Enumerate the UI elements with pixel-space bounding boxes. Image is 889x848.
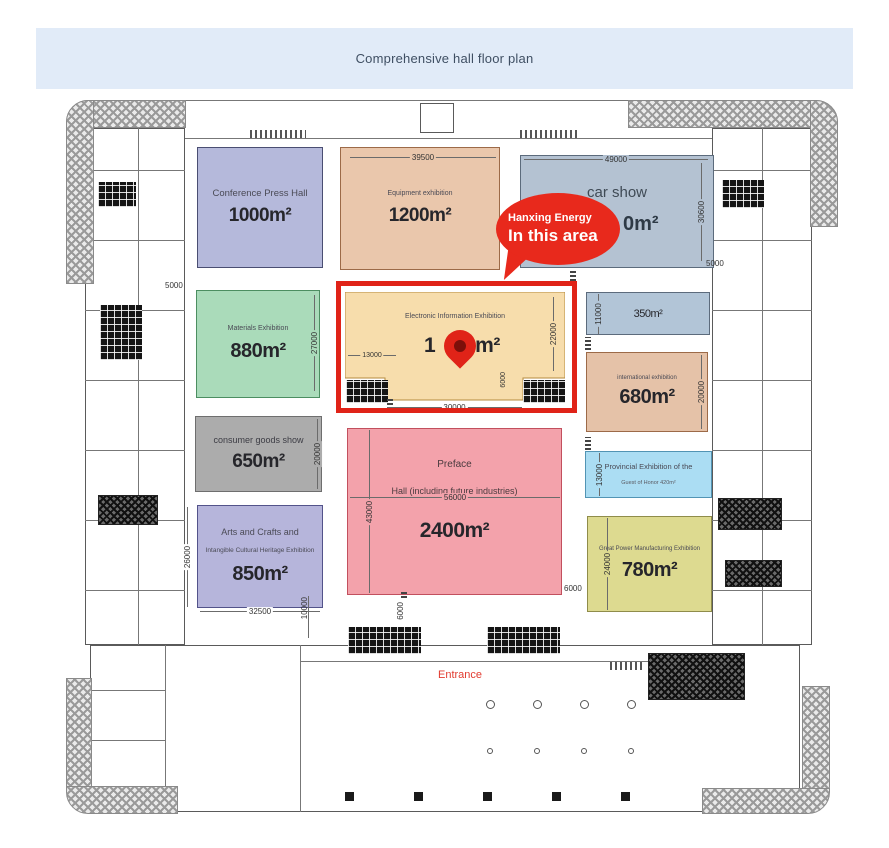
page-header: Comprehensive hall floor plan [36, 28, 853, 89]
zone-area: 350m² [634, 308, 663, 320]
door-post [414, 792, 423, 801]
zone-conference-press-hall: Conference Press Hall 1000m² [197, 147, 323, 268]
zone-name: international exhibition [617, 375, 677, 383]
door-post [621, 792, 630, 801]
callout-bubble[interactable]: Hanxing Energy In this area [496, 193, 620, 265]
top-vestibule [420, 103, 454, 133]
dim-label: 6000 [564, 584, 582, 593]
right-stair-block [722, 180, 764, 208]
dim-line: 56000 [350, 497, 560, 498]
dim-line: 20000 [317, 419, 318, 489]
dim-line: 24000 [607, 518, 608, 610]
left-wing-divider [85, 240, 185, 241]
dim-label: 20000 [313, 441, 322, 467]
left-stair-block [98, 182, 136, 207]
column-dot [627, 700, 636, 709]
column-dot [628, 748, 634, 754]
zone-area: 680m² [619, 386, 674, 409]
right-wing-divider [712, 380, 812, 381]
zone-name: Conference Press Hall [212, 188, 307, 200]
dim-line: 20000 [701, 355, 702, 429]
left-escalator-block [98, 495, 158, 525]
expansion-joint [585, 437, 591, 450]
left-wing-divider [85, 380, 185, 381]
lobby-room-line [90, 690, 165, 691]
zone-area: 780m² [622, 559, 677, 582]
expansion-joint [585, 337, 591, 350]
door-post [552, 792, 561, 801]
zone-name: Great Power Manufacturing Exhibition [599, 546, 700, 554]
zone-name-line2: Intangible Cultural Heritage Exhibition [206, 547, 315, 555]
zone-name: Equipment exhibition [388, 190, 453, 199]
dim-label: 32500 [247, 607, 273, 616]
wall-hatch-top-right-h [628, 100, 838, 128]
zone-name: Provincial Exhibition of the [605, 462, 693, 471]
zone-name: consumer goods show [213, 435, 303, 446]
top-door-hatch [250, 130, 306, 138]
dim-label: 27000 [310, 330, 319, 356]
zone-consumer-goods-show: consumer goods show 650m² [195, 416, 322, 492]
dim-label: 49000 [603, 155, 629, 164]
top-wall-inner [185, 138, 712, 139]
dim-line: 30600 [701, 163, 702, 261]
callout-title: Hanxing Energy [508, 212, 620, 224]
zone-area: 1200m² [389, 205, 452, 227]
left-wing-corridor-line [138, 128, 139, 645]
dim-label: 11000 [594, 301, 603, 327]
left-wing-divider [85, 170, 185, 171]
dim-label: 56000 [442, 493, 468, 502]
zone-area: 850m² [232, 563, 287, 586]
zone-area: 650m² [232, 451, 284, 473]
zone-area: 2400m² [420, 519, 489, 543]
zone-350: 350m² [586, 292, 710, 335]
zone-name: Materials Exhibition [228, 325, 289, 334]
zone-preface-hall: Preface Hall (including future industrie… [347, 428, 562, 595]
lobby-stair-block-left [348, 627, 421, 654]
door-post [345, 792, 354, 801]
expansion-joint [401, 590, 407, 598]
dim-label: 43000 [365, 498, 374, 524]
dim-line: 39500 [350, 157, 496, 158]
dim-label: 6000 [396, 602, 405, 620]
dim-label: 10000 [300, 597, 309, 619]
floor-plan-page: Comprehensive hall floor plan [0, 0, 889, 848]
right-wing-divider [712, 590, 812, 591]
dim-label: 30600 [697, 199, 706, 225]
dim-label: 24000 [603, 551, 612, 577]
dim-label: 13000 [595, 461, 604, 487]
dim-line: 11000 [598, 294, 599, 334]
dim-line: 13000 [599, 453, 600, 496]
zone-area: 1000m² [229, 205, 292, 227]
lobby-escalator-block [648, 653, 745, 700]
column-dot [533, 700, 542, 709]
lobby-room-line [90, 740, 165, 741]
right-wing-divider [712, 170, 812, 171]
dim-line: 27000 [314, 295, 315, 391]
top-door-hatch [520, 130, 578, 138]
door-post [483, 792, 492, 801]
lobby-hatch-strip [610, 662, 645, 670]
zone-subtitle: Guest of Honor 420m² [621, 480, 675, 487]
right-escalator-block [725, 560, 782, 587]
dim-label: 5000 [706, 259, 724, 268]
lobby-stair-block-right [487, 627, 560, 654]
wall-hatch-top-left-v [66, 100, 94, 284]
right-wing-divider [712, 240, 812, 241]
column-dot [581, 748, 587, 754]
right-wing-divider [712, 450, 812, 451]
zone-name-line1: Preface [437, 459, 471, 472]
zone-area: 880m² [230, 340, 285, 363]
zone-arts-and-crafts: Arts and Crafts and Intangible Cultural … [197, 505, 323, 608]
right-wing-divider [712, 310, 812, 311]
left-wing-divider [85, 590, 185, 591]
car-show-area-fragment: 0m² [623, 213, 659, 236]
page-title: Comprehensive hall floor plan [356, 51, 534, 66]
zone-name-line1: Arts and Crafts and [221, 527, 299, 538]
dim-label: 39500 [410, 153, 436, 162]
column-dot [534, 748, 540, 754]
left-wing-divider [85, 450, 185, 451]
column-dot [580, 700, 589, 709]
column-dot [487, 748, 493, 754]
zone-equipment-exhibition: Equipment exhibition 1200m² [340, 147, 500, 270]
wall-hatch-bottom-right-h [702, 788, 830, 814]
dim-label: 5000 [165, 281, 183, 290]
right-escalator-block [718, 498, 782, 530]
wall-hatch-bottom-left-h [66, 786, 178, 814]
callout-subtitle: In this area [508, 226, 620, 246]
dim-label: 26000 [183, 544, 192, 570]
dim-line: 43000 [369, 430, 370, 593]
pin-hole [452, 338, 469, 355]
zone-international-exhibition: international exhibition 680m² [586, 352, 708, 432]
dim-line: 49000 [524, 159, 708, 160]
column-dot [486, 700, 495, 709]
entrance-label: Entrance [415, 669, 505, 681]
zone-materials-exhibition: Materials Exhibition 880m² [196, 290, 320, 398]
wall-hatch-top-right-v [810, 100, 838, 227]
dim-label: 20000 [697, 379, 706, 405]
dim-line: 26000 [187, 507, 188, 607]
left-stair-block [100, 305, 142, 360]
lobby-wall-left [300, 645, 301, 812]
